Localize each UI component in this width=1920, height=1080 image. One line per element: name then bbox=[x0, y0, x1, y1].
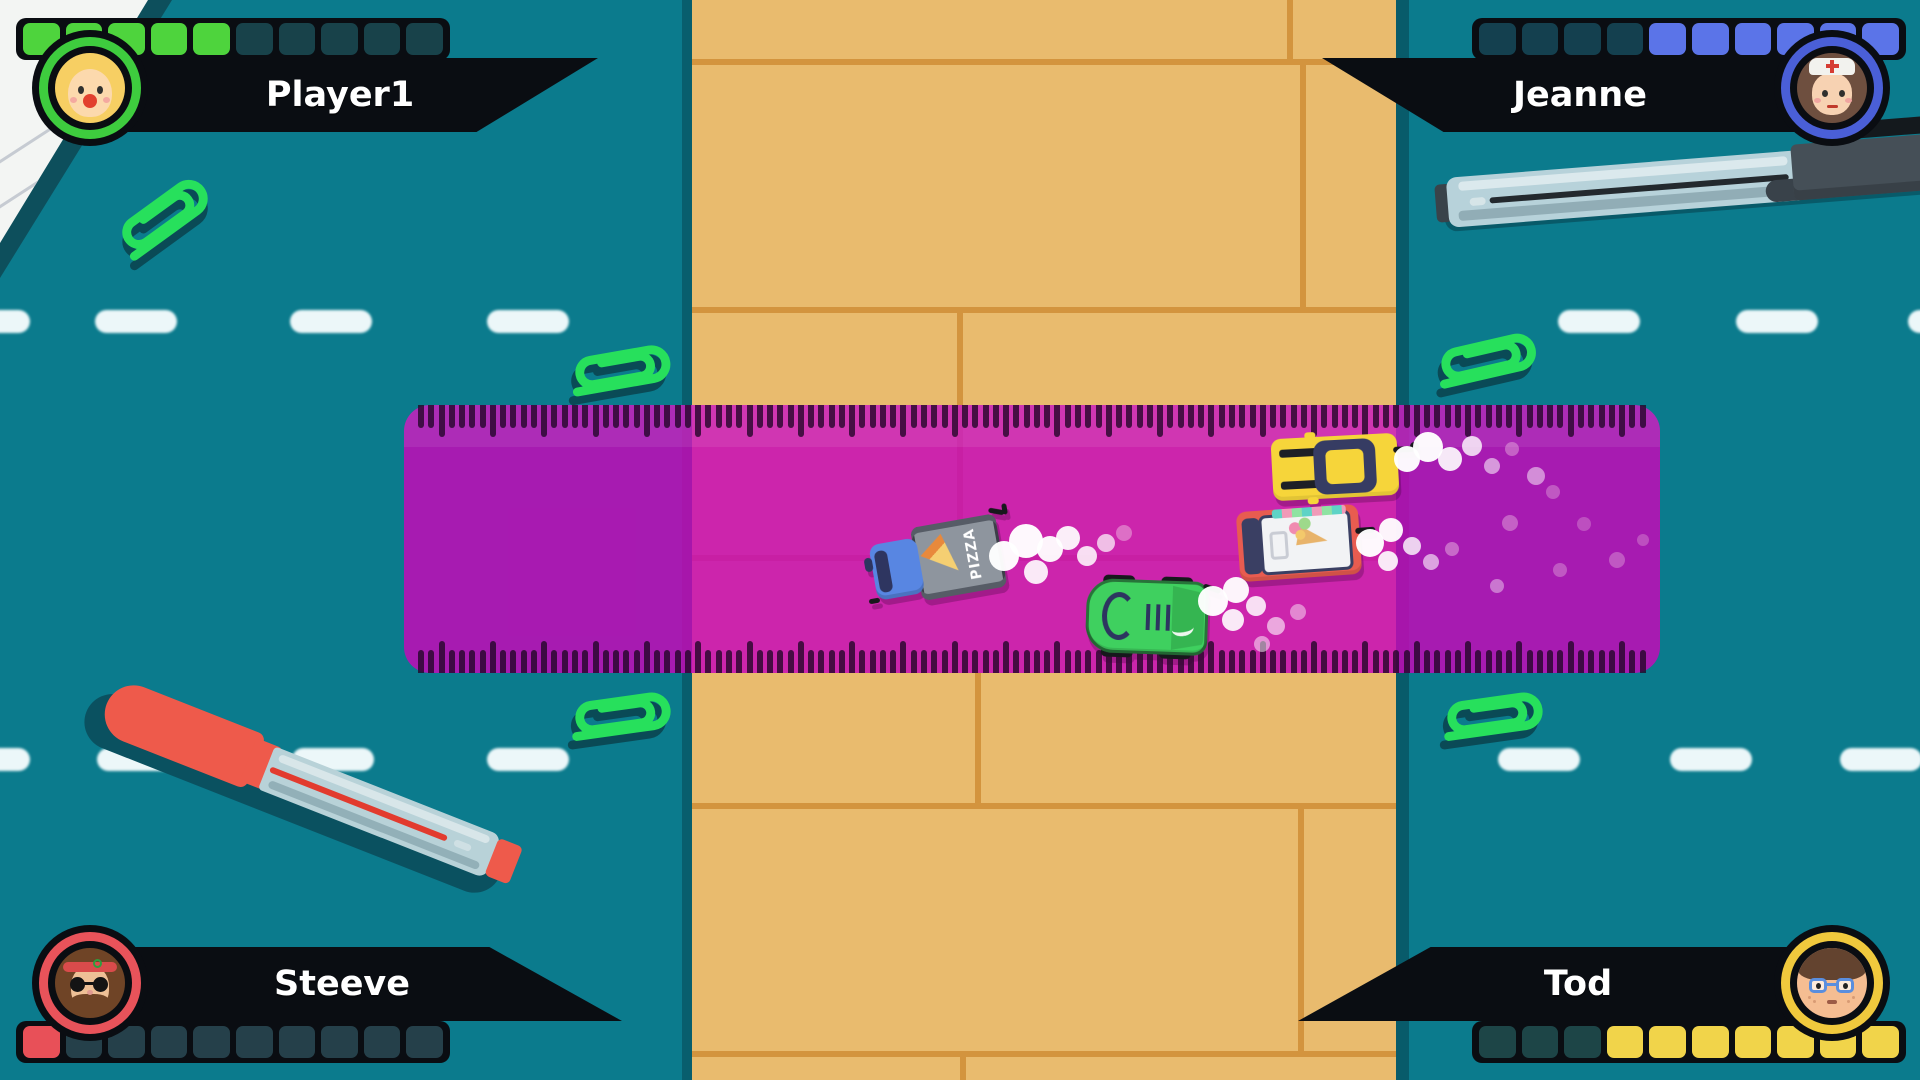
smoke-puff bbox=[1577, 517, 1591, 531]
smoke-puff bbox=[1484, 458, 1500, 474]
smoke-puff bbox=[1024, 560, 1048, 584]
smoke-puff bbox=[1246, 596, 1266, 616]
smoke-puff bbox=[1505, 442, 1519, 456]
smoke-puff bbox=[1423, 554, 1439, 570]
smoke-puff bbox=[1546, 485, 1560, 499]
smoke-puff bbox=[1290, 604, 1306, 620]
smoke-puff bbox=[1077, 546, 1097, 566]
smoke-puff bbox=[1378, 551, 1398, 571]
smoke-puff bbox=[1445, 542, 1459, 556]
smoke-puff bbox=[1222, 609, 1244, 631]
smoke-puff bbox=[1637, 534, 1649, 546]
smoke-layer bbox=[0, 0, 1920, 1080]
smoke-puff bbox=[1553, 563, 1567, 577]
smoke-puff bbox=[1490, 579, 1504, 593]
smoke-puff bbox=[1267, 617, 1285, 635]
smoke-puff bbox=[1116, 525, 1132, 541]
smoke-puff bbox=[1438, 447, 1462, 471]
smoke-puff bbox=[1462, 436, 1482, 456]
game-viewport[interactable]: PIZZA bbox=[0, 0, 1920, 1080]
smoke-puff bbox=[1403, 537, 1421, 555]
smoke-puff bbox=[1609, 552, 1625, 568]
smoke-puff bbox=[1056, 526, 1080, 550]
smoke-puff bbox=[1223, 577, 1249, 603]
smoke-puff bbox=[1502, 515, 1518, 531]
smoke-puff bbox=[1097, 534, 1115, 552]
smoke-puff bbox=[1527, 467, 1545, 485]
smoke-puff bbox=[1254, 636, 1270, 652]
smoke-puff bbox=[1379, 518, 1403, 542]
